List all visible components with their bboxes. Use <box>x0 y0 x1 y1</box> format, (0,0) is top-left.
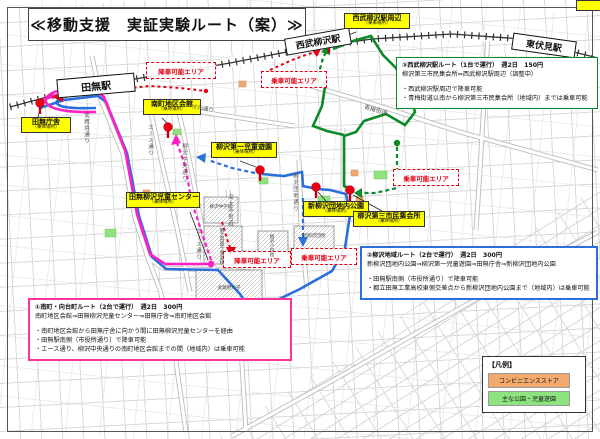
road-ace: エース通り <box>146 124 154 157</box>
yellow-label-fragment <box>576 0 600 11</box>
facility-shogakko: 柳沢小学校 <box>268 234 274 257</box>
legend-item-convenience-store: コンビニエンスストア <box>488 373 570 388</box>
route2-title: ②柳沢地域ルート（2台で運行） 週2日 300円 <box>367 252 591 261</box>
route3-bullet: ・青梅街道以南から柳沢第三市民集会所（地域内）までは乗車可能 <box>402 95 592 104</box>
facility-shin-danchi: 新柳沢団地 <box>296 233 332 239</box>
route1-bullet: ・南町地区会館から田無庁舎に向かう間に田無柳沢児童センターを経由 <box>35 328 285 337</box>
stop-label-yagisawa-daisan: 柳沢第三市民集会所 （乗降場所） <box>353 211 425 227</box>
stop-label-tanashi-chosha: 田無庁舎 （乗降場所） <box>21 117 71 133</box>
road-ace-2: エース通り <box>194 228 202 261</box>
facility-kogyo-koko: 都立田無工業高校 <box>218 228 224 265</box>
area-board-east: 乗車可能エリア <box>393 169 459 186</box>
stop-sub: （乗降場所） <box>356 220 422 225</box>
facility-chugakko: 柳沢中学校 <box>205 204 237 210</box>
stop-label-seibu-shuhen: 西武柳沢駅周辺 （乗車場所） <box>344 13 410 29</box>
legend-title: 【凡例】 <box>488 360 580 370</box>
stop-sub: （乗降場所） <box>129 201 197 206</box>
road-yagisawa-chuo: 柳沢中央通り <box>180 143 188 182</box>
route2-bullet: ・田無駅南側（市役所通り）で降車可能 <box>367 276 591 285</box>
route3-info-box: ③西武柳沢駅ルート（1台で運行） 週2日 150円 柳沢第三市民集会所⇔西武柳沢… <box>396 57 598 109</box>
page-title: ≪移動支援 実証実験ルート（案）≫ <box>28 8 306 41</box>
stop-sub: （乗降場所） <box>24 126 68 131</box>
route1-title: ①南町・向台町ルート（2台で運行） 週2日 300円 <box>35 304 285 313</box>
route1-info-box: ①南町・向台町ルート（2台で運行） 週2日 300円 南町地区会館⇒田無柳沢児童… <box>28 298 292 361</box>
route1-bullet: ・田無駅南側（市役所通り）で降車可能 <box>35 337 285 346</box>
route2-path: 新柳沢団地内公園⇒柳沢第一児童遊園⇒田無庁舎⇒新柳沢団地内公園 <box>367 261 591 270</box>
area-board-seibu: 乗車可能エリア <box>261 71 327 88</box>
route3-bullet: ・西武柳沢駅周辺で降車可能 <box>402 86 592 95</box>
area-alight-tanashi: 降車可能エリア <box>146 62 216 79</box>
stop-sub: （乗降場所） <box>146 108 198 113</box>
road-danchi-dori: 柳沢団地通り <box>291 173 299 212</box>
stop-sub: （乗降場所） <box>214 151 274 156</box>
area-alight-center: 降車可能エリア <box>223 251 291 268</box>
stop-label-yagisawa-daiichi: 柳沢第一児童遊園 （乗降場所） <box>211 142 277 158</box>
route-map-page: ≪移動支援 実証実験ルート（案）≫ 田無駅 西武柳沢駅 東伏見駅 西武柳沢駅周辺… <box>0 0 600 439</box>
stop-sub: （乗車場所） <box>347 22 407 27</box>
legend-box: 【凡例】 コンビニエンスストア 主な公園・児童遊園 <box>482 356 586 413</box>
area-board-center: 乗車可能エリア <box>291 248 357 265</box>
facility-musashino-univ: 武蔵野大学 <box>204 285 254 291</box>
road-musashisakai: 武蔵境通り <box>82 112 90 145</box>
route2-bullet: ・都立田無工業高校東側交差点から新柳沢団地内公園まで（地域内）は乗車可能 <box>367 285 591 294</box>
legend-item-park: 主な公園・児童遊園 <box>488 391 570 406</box>
route3-title: ③西武柳沢駅ルート（1台で運行） 週2日 150円 <box>402 62 592 71</box>
route2-info-box: ②柳沢地域ルート（2台で運行） 週2日 300円 新柳沢団地内公園⇒柳沢第一児童… <box>360 246 598 300</box>
stop-label-jido-center: 田無柳沢児童センター （乗降場所） <box>126 192 200 208</box>
route1-path: 南町地区会館⇒田無柳沢児童センター⇒田無庁舎⇒南町地区会館 <box>35 313 285 322</box>
route3-path: 柳沢第三市民集会所⇔西武柳沢駅周辺（調整中） <box>402 71 592 80</box>
route1-bullet: ・エース通り、柳沢中央通りの南町地区会館までの間（地域内）は乗車可能 <box>35 346 285 355</box>
road-jindaiji: 深大寺街道 <box>226 194 234 227</box>
